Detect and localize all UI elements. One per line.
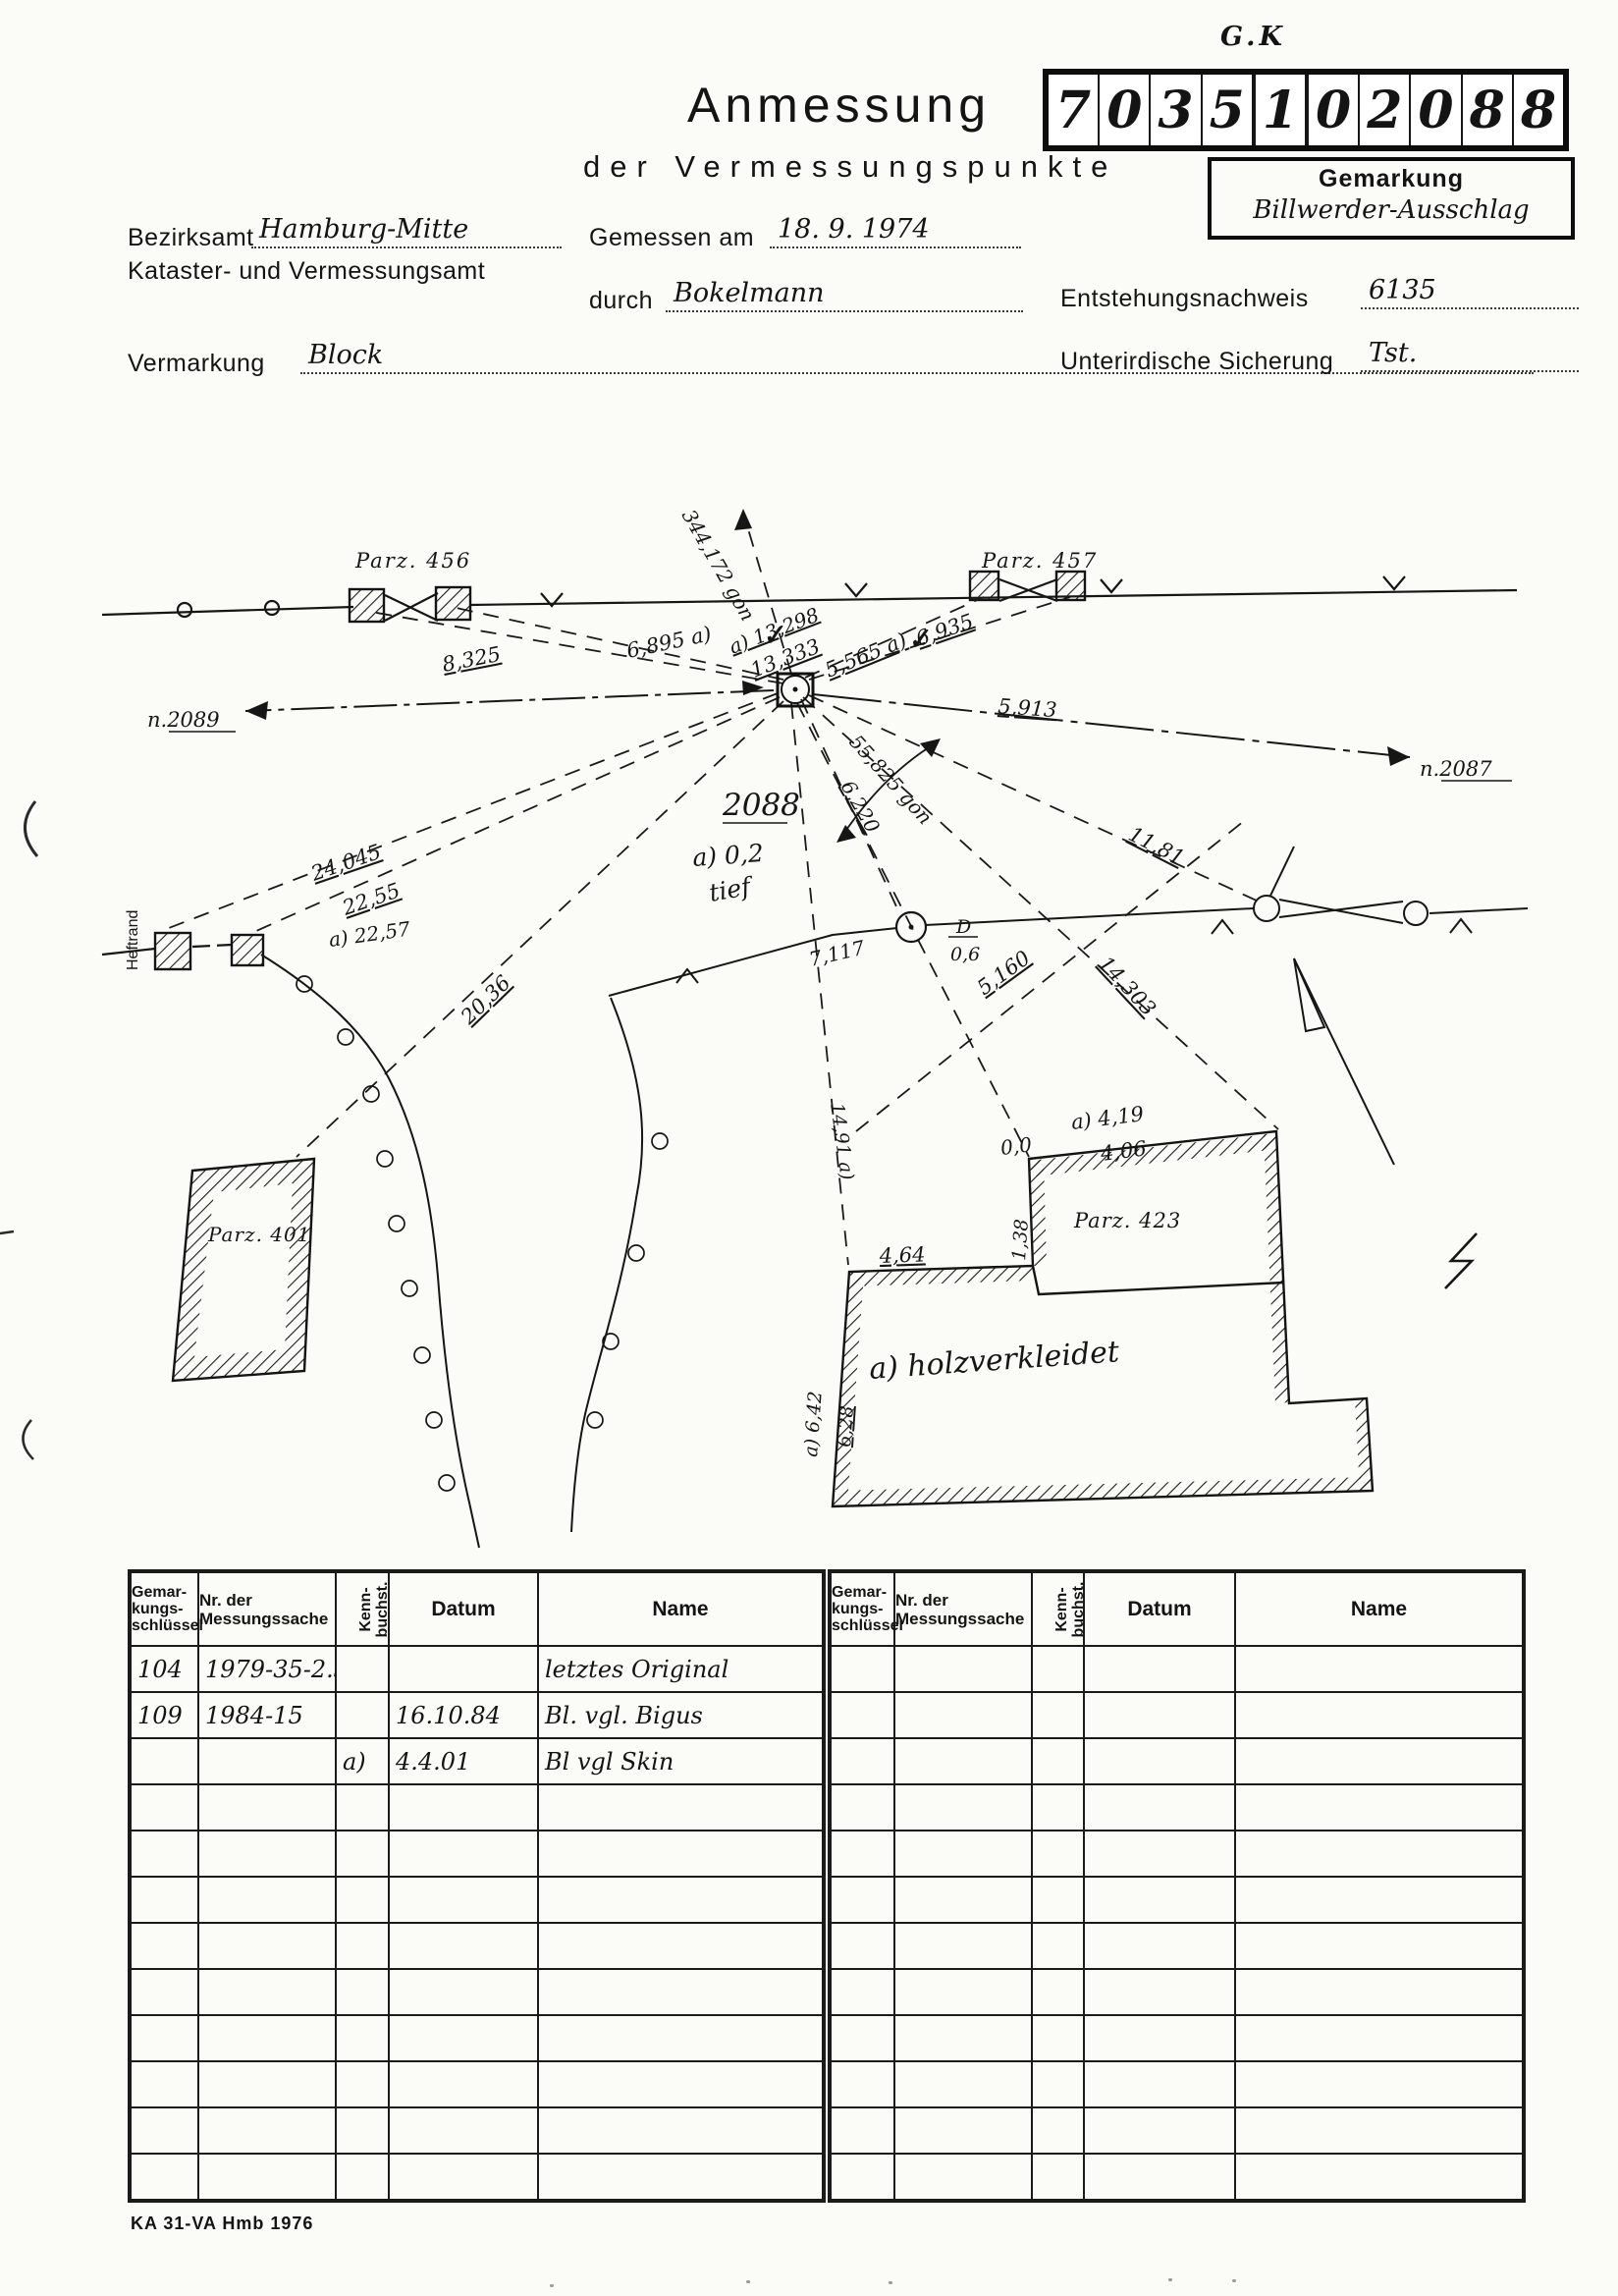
- cell-kennbuchst: [336, 2061, 389, 2107]
- measure-2036: 20,36: [456, 971, 515, 1030]
- measure-642: a) 6,42: [800, 1391, 827, 1457]
- sketch-label-parz456: Parz. 456: [354, 549, 471, 573]
- table-row: [830, 2061, 1524, 2107]
- measure-628: 6,28: [834, 1405, 858, 1449]
- cell-datum: [1084, 1738, 1235, 1784]
- table-row: a)4.4.01Bl vgl Skin: [130, 1738, 824, 1784]
- cell-name: Bl. vgl. Bigus: [538, 1692, 824, 1738]
- header-messungssache: Nr. der Messungssache: [198, 1571, 336, 1646]
- tree-diameter-value: 0,6: [950, 944, 980, 965]
- n2087-arrowhead: [1387, 746, 1410, 766]
- scan-speck: [1168, 2278, 1172, 2281]
- cell-gemarkungsschluessel: [830, 2015, 894, 2061]
- cell-datum: [389, 1646, 538, 1692]
- record-table-right: Gemar- kungs- schlüssel Nr. der Messungs…: [828, 1569, 1526, 2203]
- point-number-box: 7035102088: [1043, 69, 1569, 151]
- cell-name: [538, 1969, 824, 2015]
- cell-name: [538, 1784, 824, 1831]
- tree-diameter-label: D: [955, 916, 971, 938]
- table-row: [830, 1646, 1524, 1692]
- cell-kennbuchst: [1032, 2107, 1084, 2154]
- check-mark-2: ✓: [905, 623, 933, 657]
- table-row: 1041979-35-2.31letztes Original: [130, 1646, 824, 1692]
- cell-gemarkungsschluessel: 104: [130, 1646, 198, 1692]
- durch-value: Bokelmann: [666, 278, 1023, 312]
- scan-speck: [889, 2281, 892, 2284]
- cell-name: [1235, 2061, 1524, 2107]
- cell-name: [1235, 2015, 1524, 2061]
- measure-2255: 22,55: [339, 878, 404, 920]
- point-number-digit: 8: [1514, 75, 1563, 145]
- cell-name: [1235, 1923, 1524, 1969]
- cell-gemarkungsschluessel: [130, 1738, 198, 1784]
- table-row: [830, 1969, 1524, 2015]
- measure-6935: 6,935: [913, 609, 977, 650]
- cell-name: [538, 2107, 824, 2154]
- heftrand-label: Heftrand: [125, 910, 141, 970]
- table-row: [830, 1831, 1524, 1877]
- survey-point-symbol: [778, 674, 813, 706]
- point-number-digit: 5: [1203, 75, 1256, 145]
- cell-messungssache: [198, 1969, 336, 2015]
- sketch-label-n2089: n.2089: [147, 708, 220, 732]
- cell-gemarkungsschluessel: [830, 2154, 894, 2201]
- cell-kennbuchst: [336, 1877, 389, 1923]
- cell-gemarkungsschluessel: [130, 2015, 198, 2061]
- cell-messungssache: [894, 2154, 1032, 2201]
- table-row: [130, 1784, 824, 1831]
- north-arrow: [1294, 958, 1477, 1288]
- stream-curves: [261, 955, 642, 1548]
- cell-name: [1235, 1738, 1524, 1784]
- cell-kennbuchst: [336, 1923, 389, 1969]
- table-row: [830, 2154, 1524, 2201]
- cell-messungssache: [198, 1738, 336, 1784]
- cell-messungssache: [198, 1923, 336, 1969]
- header-messungssache: Nr. der Messungssache: [894, 1571, 1032, 1646]
- parcel-401: [173, 1159, 314, 1381]
- cell-datum: [1084, 1923, 1235, 1969]
- cell-gemarkungsschluessel: 109: [130, 1692, 198, 1738]
- measure-138: 1,38: [1008, 1219, 1033, 1262]
- sicherung-label: Unterirdische Sicherung: [1060, 348, 1333, 376]
- cell-messungssache: [894, 1877, 1032, 1923]
- cell-datum: [389, 2154, 538, 2201]
- cell-kennbuchst: [1032, 1738, 1084, 1784]
- form-number-footer: KA 31-VA Hmb 1976: [131, 2214, 313, 2234]
- measure-14303: 14,303: [1094, 952, 1160, 1020]
- cell-datum: [1084, 2107, 1235, 2154]
- cell-gemarkungsschluessel: [130, 2107, 198, 2154]
- boundary-marker-squares: [155, 572, 1085, 969]
- sketch-label-parz457: Parz. 457: [981, 549, 1098, 573]
- cell-datum: [1084, 2154, 1235, 2201]
- form-title: Anmessung: [687, 77, 991, 134]
- gemarkung-label: Gemarkung: [1212, 165, 1571, 193]
- cell-kennbuchst: [336, 1646, 389, 1692]
- vermarkung-label: Vermarkung: [128, 350, 265, 378]
- cell-gemarkungsschluessel: [830, 2061, 894, 2107]
- header-kennbuchst: Kenn-buchst.: [1032, 1571, 1084, 1646]
- measure-419: a) 4,19: [1070, 1102, 1146, 1134]
- arc-arrowhead-top: [920, 738, 941, 757]
- cell-kennbuchst: [336, 2015, 389, 2061]
- cell-kennbuchst: [336, 2154, 389, 2201]
- cell-messungssache: [894, 1738, 1032, 1784]
- table-row: [130, 1923, 824, 1969]
- path-circles: [1254, 896, 1428, 925]
- sketch-label-n2087: n.2087: [1420, 757, 1492, 781]
- scan-speck: [1232, 2279, 1236, 2282]
- cell-datum: [389, 2061, 538, 2107]
- cell-datum: [1084, 1877, 1235, 1923]
- building-note: a) holzverkleidet: [868, 1335, 1121, 1387]
- cell-name: [538, 2015, 824, 2061]
- cell-datum: 16.10.84: [389, 1692, 538, 1738]
- cell-name: [1235, 1784, 1524, 1831]
- cell-name: [1235, 1877, 1524, 1923]
- cell-gemarkungsschluessel: [830, 1784, 894, 1831]
- cell-datum: [1084, 2015, 1235, 2061]
- point-number-digit: 1: [1256, 75, 1309, 145]
- cell-gemarkungsschluessel: [130, 2061, 198, 2107]
- measure-13298: a) 13,298: [726, 603, 822, 659]
- cell-gemarkungsschluessel: [830, 1877, 894, 1923]
- table-row: [830, 1738, 1524, 1784]
- header-datum: Datum: [389, 1571, 538, 1646]
- cell-gemarkungsschluessel: [830, 1646, 894, 1692]
- table-row: [130, 2154, 824, 2201]
- gemessen-label: Gemessen am: [589, 224, 754, 252]
- sketch-note-tief: tief: [707, 871, 756, 907]
- header-datum: Datum: [1084, 1571, 1235, 1646]
- cell-messungssache: [894, 1923, 1032, 1969]
- cell-messungssache: [198, 2107, 336, 2154]
- cell-kennbuchst: [1032, 2154, 1084, 2201]
- cell-gemarkungsschluessel: [130, 2154, 198, 2201]
- gk-note: G.K: [1220, 22, 1286, 52]
- bezirksamt-label: Bezirksamt: [128, 224, 254, 252]
- sketch-label-2088: 2088: [722, 788, 800, 823]
- cell-name: [1235, 1969, 1524, 2015]
- cell-datum: [1084, 1784, 1235, 1831]
- cell-gemarkungsschluessel: [830, 1969, 894, 2015]
- measure-1491: 14,91 a): [826, 1102, 858, 1181]
- table-row: [130, 1831, 824, 1877]
- angle-arc: [840, 742, 937, 839]
- measurement-rays: [169, 513, 1278, 1265]
- cell-kennbuchst: [336, 1831, 389, 1877]
- cell-datum: [389, 2015, 538, 2061]
- sketch-label-parz423: Parz. 423: [1073, 1209, 1181, 1232]
- form-subtitle: der Vermessungspunkte: [583, 149, 1117, 185]
- cell-messungssache: [198, 2015, 336, 2061]
- cell-messungssache: 1984-15: [198, 1692, 336, 1738]
- fence-lines: [102, 576, 1517, 955]
- measure-24045: 24,045: [307, 840, 384, 886]
- cell-gemarkungsschluessel: [130, 1923, 198, 1969]
- building-423: [833, 1131, 1373, 1506]
- cell-messungssache: [198, 1784, 336, 1831]
- point-number-digit: 7: [1049, 75, 1100, 145]
- measure-7117: 7,117: [807, 936, 867, 971]
- measure-2257: a) 22,57: [327, 917, 411, 952]
- cell-kennbuchst: [1032, 1877, 1084, 1923]
- cell-name: [1235, 1831, 1524, 1877]
- cell-messungssache: [894, 1969, 1032, 2015]
- cell-kennbuchst: [1032, 2061, 1084, 2107]
- amt-line2: Kataster- und Vermessungsamt: [128, 257, 485, 286]
- table-header-row: Gemar- kungs- schlüssel Nr. der Messungs…: [830, 1571, 1524, 1646]
- cell-name: [538, 1923, 824, 1969]
- cell-gemarkungsschluessel: [830, 2107, 894, 2154]
- cell-name: [1235, 2154, 1524, 2201]
- measure-5565: 5,565 a): [822, 629, 910, 683]
- cell-gemarkungsschluessel: [130, 1784, 198, 1831]
- cell-datum: [1084, 1969, 1235, 2015]
- measure-6895: 6,895 a): [624, 622, 714, 663]
- entstehung-label: Entstehungsnachweis: [1060, 285, 1309, 313]
- cell-name: [1235, 2107, 1524, 2154]
- point-number-digit: 3: [1151, 75, 1202, 145]
- measure-6220: 6,220: [836, 777, 886, 838]
- scanned-form-page: G.K Anmessung der Vermessungspunkte 7035…: [0, 0, 1618, 2296]
- cell-name: [1235, 1692, 1524, 1738]
- vermarkung-value: Block: [300, 340, 1534, 374]
- cell-kennbuchst: [1032, 1923, 1084, 1969]
- arc-arrowhead-bottom: [836, 825, 856, 843]
- gemessen-value: 18. 9. 1974: [770, 214, 1021, 248]
- cell-name: [1235, 1646, 1524, 1692]
- cell-messungssache: [894, 2061, 1032, 2107]
- record-table-left: Gemar- kungs- schlüssel Nr. der Messungs…: [128, 1569, 826, 2203]
- gemarkung-box: Gemarkung Billwerder-Ausschlag: [1208, 157, 1575, 240]
- cell-datum: [389, 1923, 538, 1969]
- cell-messungssache: [198, 1831, 336, 1877]
- cell-kennbuchst: [336, 1692, 389, 1738]
- table-row: [130, 2061, 824, 2107]
- header-name: Name: [538, 1571, 824, 1646]
- cell-datum: [1084, 1692, 1235, 1738]
- table-header-row: Gemar- kungs- schlüssel Nr. der Messungs…: [130, 1571, 824, 1646]
- cell-messungssache: 1979-35-2.31: [198, 1646, 336, 1692]
- sicherung-value: Tst.: [1361, 338, 1579, 372]
- cell-datum: [1084, 1831, 1235, 1877]
- cell-messungssache: [198, 1877, 336, 1923]
- cell-kennbuchst: [336, 1969, 389, 2015]
- cell-kennbuchst: [1032, 1969, 1084, 2015]
- table-row: [130, 1969, 824, 2015]
- label-underlines: [169, 732, 1512, 823]
- table-row: [130, 2015, 824, 2061]
- header-gemarkungsschluessel: Gemar- kungs- schlüssel: [830, 1571, 894, 1646]
- tree-symbol: [896, 912, 978, 942]
- cell-kennbuchst: [1032, 1784, 1084, 1831]
- gemarkung-value: Billwerder-Ausschlag: [1212, 195, 1571, 225]
- header-name: Name: [1235, 1571, 1524, 1646]
- table-row: [830, 2015, 1524, 2061]
- point-number-digit: 8: [1463, 75, 1514, 145]
- sketch-label-parz401: Parz. 401: [207, 1223, 310, 1246]
- measure-1181: 11,81: [1125, 822, 1188, 870]
- cell-name: [538, 2154, 824, 2201]
- cell-messungssache: [198, 2061, 336, 2107]
- table-row: [830, 1692, 1524, 1738]
- cell-datum: [389, 2107, 538, 2154]
- ray-arrowhead: [742, 681, 764, 695]
- cell-gemarkungsschluessel: [130, 1877, 198, 1923]
- stream-circles: [297, 976, 668, 1491]
- table-row: [130, 1877, 824, 1923]
- cell-datum: 4.4.01: [389, 1738, 538, 1784]
- measure-5160: 5,160: [973, 946, 1035, 1000]
- table-row: [830, 1923, 1524, 1969]
- measure-13333: 13,333: [747, 634, 823, 683]
- bezirksamt-value: Hamburg-Mitte: [251, 214, 562, 248]
- cell-name: letztes Original: [538, 1646, 824, 1692]
- cell-gemarkungsschluessel: [130, 1831, 198, 1877]
- path-lines: [609, 847, 1528, 996]
- sketch-label-gon55: 55,825 gon: [844, 730, 937, 829]
- scan-speck: [550, 2284, 554, 2287]
- point-number-digit: 0: [1309, 75, 1360, 145]
- cell-messungssache: [894, 2015, 1032, 2061]
- cell-messungssache: [198, 2154, 336, 2201]
- measure-8325: 8,325: [440, 642, 503, 677]
- cell-messungssache: [894, 1784, 1032, 1831]
- cell-gemarkungsschluessel: [130, 1969, 198, 2015]
- entstehung-value: 6135: [1361, 275, 1579, 309]
- durch-label: durch: [589, 287, 653, 315]
- cell-datum: [1084, 1646, 1235, 1692]
- n2089-arrowhead: [245, 701, 268, 720]
- cell-kennbuchst: [1032, 1646, 1084, 1692]
- header-kennbuchst: Kenn-buchst.: [336, 1571, 389, 1646]
- cell-datum: [389, 1784, 538, 1831]
- cell-messungssache: [894, 1692, 1032, 1738]
- neighbour-lines: [245, 690, 1410, 757]
- cell-kennbuchst: [336, 2107, 389, 2154]
- cell-gemarkungsschluessel: [830, 1692, 894, 1738]
- table-row: [830, 1877, 1524, 1923]
- cell-name: Bl vgl Skin: [538, 1738, 824, 1784]
- cell-datum: [389, 1831, 538, 1877]
- cell-gemarkungsschluessel: [830, 1738, 894, 1784]
- cell-kennbuchst: [1032, 1692, 1084, 1738]
- cell-kennbuchst: [1032, 1831, 1084, 1877]
- cell-messungssache: [894, 1646, 1032, 1692]
- cell-datum: [1084, 2061, 1235, 2107]
- cell-name: [538, 1831, 824, 1877]
- table-row: [130, 2107, 824, 2154]
- cell-gemarkungsschluessel: [830, 1923, 894, 1969]
- scan-artifacts: [0, 801, 37, 1459]
- cell-name: [538, 2061, 824, 2107]
- measure-464: 4,64: [878, 1242, 926, 1268]
- sketch-note-depth: a) 0,2: [691, 839, 764, 872]
- table-row: [830, 2107, 1524, 2154]
- measure-00: 0,0: [999, 1132, 1034, 1160]
- check-mark-1: ✓: [760, 619, 787, 653]
- scan-speck: [746, 2280, 750, 2283]
- cell-gemarkungsschluessel: [830, 1831, 894, 1877]
- cell-kennbuchst: [1032, 2015, 1084, 2061]
- point-number-digit: 2: [1360, 75, 1411, 145]
- cell-messungssache: [894, 1831, 1032, 1877]
- measure-5913: 5,913: [998, 694, 1058, 722]
- cell-messungssache: [894, 2107, 1032, 2154]
- cell-name: [538, 1877, 824, 1923]
- point-number-digit: 0: [1100, 75, 1151, 145]
- point-number-digit: 0: [1411, 75, 1462, 145]
- cell-datum: [389, 1969, 538, 2015]
- sketch-label-gon344: 344,172 gon: [677, 506, 760, 626]
- table-row: [830, 1784, 1524, 1831]
- header-gemarkungsschluessel: Gemar- kungs- schlüssel: [130, 1571, 198, 1646]
- cell-kennbuchst: a): [336, 1738, 389, 1784]
- measure-406: 4,06: [1099, 1136, 1148, 1166]
- cell-datum: [389, 1877, 538, 1923]
- north-ray-arrowhead: [734, 509, 752, 530]
- table-row: 1091984-1516.10.84Bl. vgl. Bigus: [130, 1692, 824, 1738]
- cell-kennbuchst: [336, 1784, 389, 1831]
